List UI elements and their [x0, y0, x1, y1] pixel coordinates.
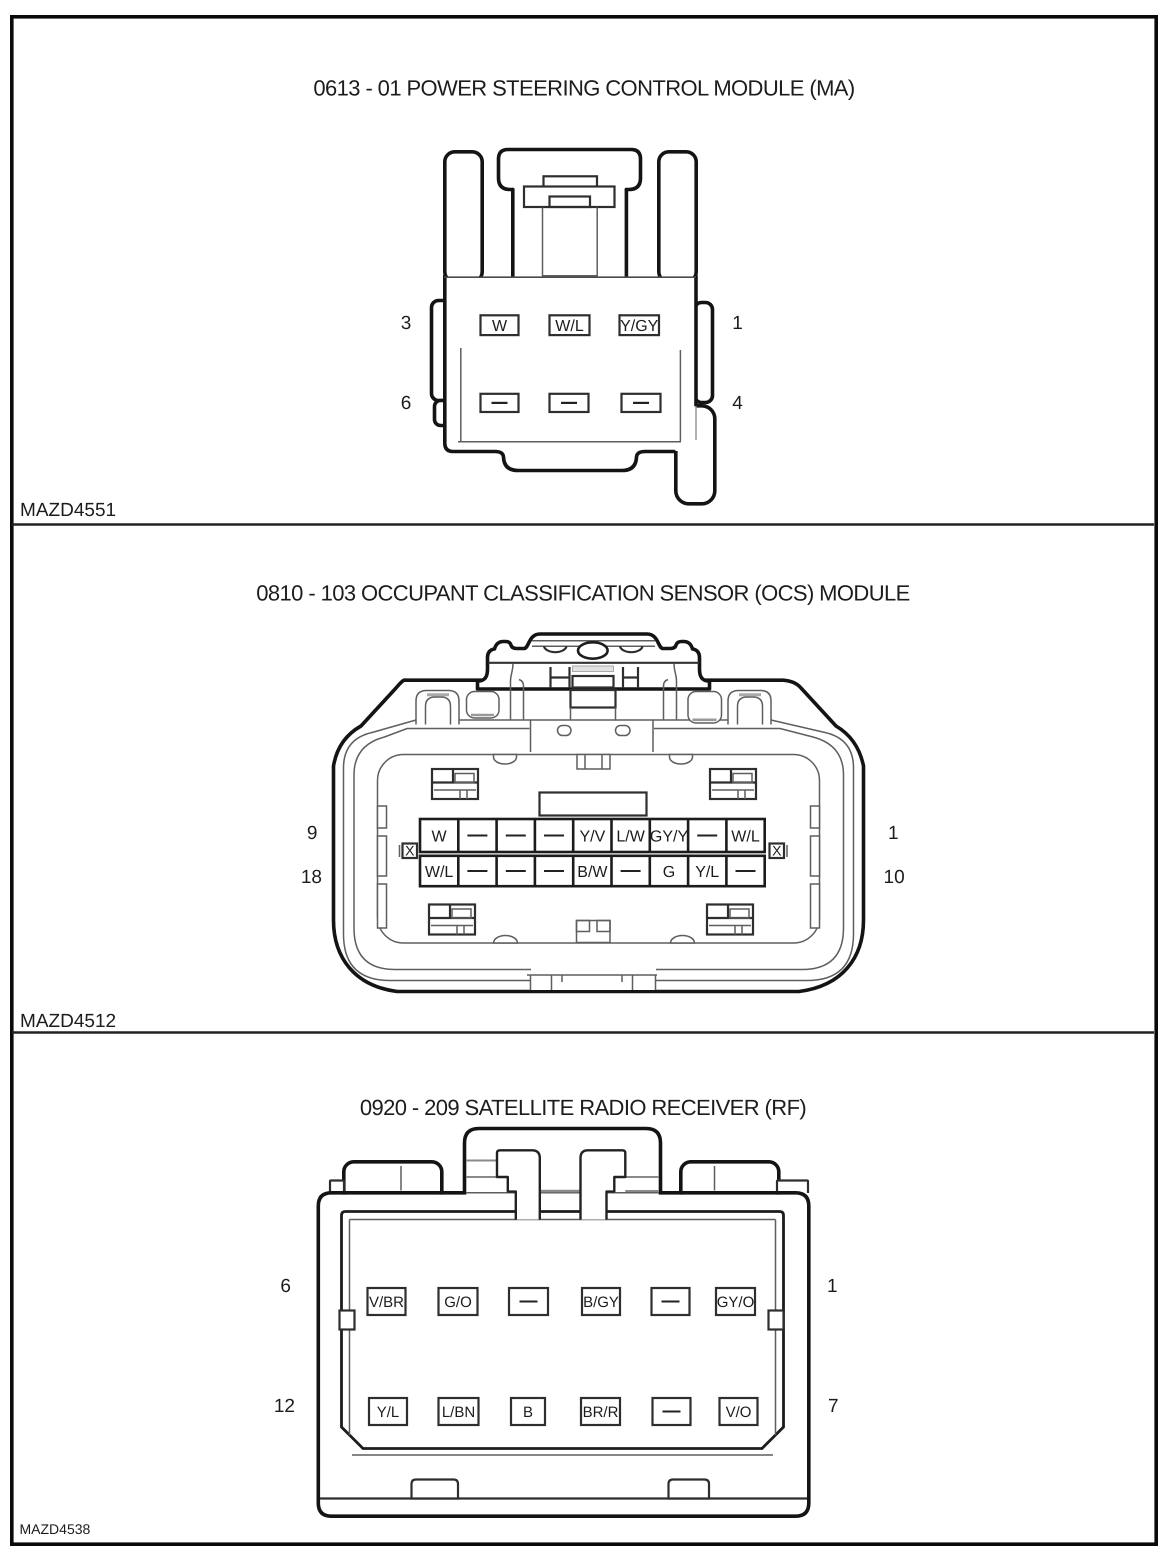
svg-text:W/L: W/L [731, 829, 760, 846]
svg-text:10: 10 [884, 867, 905, 888]
svg-text:V/O: V/O [726, 1404, 752, 1421]
svg-text:X: X [405, 843, 415, 859]
svg-text:G: G [663, 864, 675, 881]
svg-text:Y/L: Y/L [695, 864, 719, 881]
svg-text:B: B [523, 1404, 533, 1421]
svg-text:0613 - 01 POWER STEERING CONTR: 0613 - 01 POWER STEERING CONTROL MODULE … [313, 76, 854, 101]
svg-text:GY/O: GY/O [717, 1294, 755, 1311]
svg-text:BR/R: BR/R [583, 1404, 619, 1421]
svg-text:MAZD4538: MAZD4538 [20, 1521, 91, 1537]
svg-text:MAZD4551: MAZD4551 [20, 500, 116, 521]
svg-text:7: 7 [828, 1396, 839, 1417]
svg-text:W: W [492, 318, 508, 335]
svg-text:Y/L: Y/L [377, 1404, 400, 1421]
svg-text:W: W [432, 829, 448, 846]
svg-text:GY/Y: GY/Y [650, 829, 689, 846]
svg-text:1: 1 [827, 1276, 838, 1297]
svg-text:B/GY: B/GY [583, 1294, 619, 1311]
svg-text:L/BN: L/BN [442, 1404, 475, 1421]
svg-text:Y/V: Y/V [580, 829, 606, 846]
svg-text:V/BR: V/BR [369, 1294, 404, 1311]
svg-text:9: 9 [307, 823, 318, 844]
svg-text:L/W: L/W [616, 829, 645, 846]
svg-text:4: 4 [732, 393, 743, 414]
svg-text:3: 3 [401, 313, 412, 334]
svg-text:1: 1 [732, 313, 743, 334]
svg-text:W/L: W/L [555, 318, 584, 335]
svg-text:18: 18 [301, 867, 322, 888]
svg-text:MAZD4512: MAZD4512 [20, 1011, 116, 1032]
svg-text:6: 6 [401, 393, 412, 414]
svg-text:6: 6 [280, 1276, 291, 1297]
svg-text:0810 - 103 OCCUPANT CLASSIFICA: 0810 - 103 OCCUPANT CLASSIFICATION SENSO… [256, 581, 909, 606]
svg-text:W/L: W/L [425, 864, 454, 881]
svg-text:X: X [772, 843, 782, 859]
svg-text:0920 - 209 SATELLITE RADIO REC: 0920 - 209 SATELLITE RADIO RECEIVER (RF) [360, 1095, 806, 1120]
svg-text:B/W: B/W [577, 864, 608, 881]
svg-text:1: 1 [888, 823, 899, 844]
svg-text:G/O: G/O [444, 1294, 472, 1311]
svg-text:12: 12 [274, 1396, 295, 1417]
svg-text:Y/GY: Y/GY [620, 318, 659, 335]
